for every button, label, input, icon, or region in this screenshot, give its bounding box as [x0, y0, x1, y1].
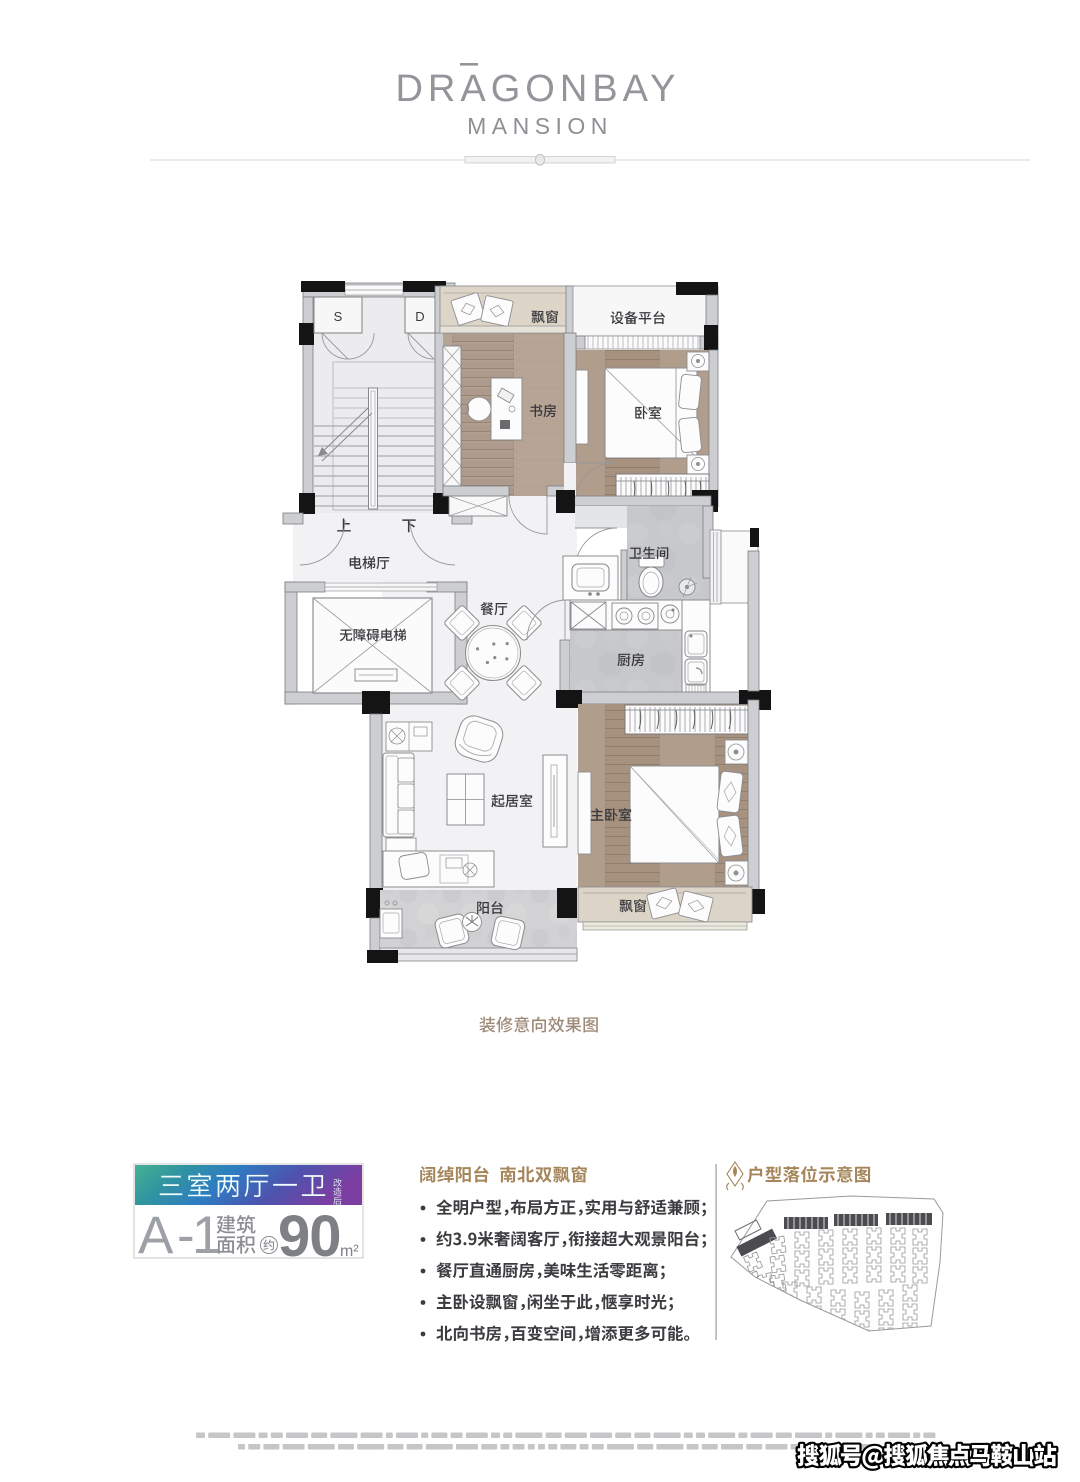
- svg-text:90: 90: [278, 1204, 341, 1269]
- svg-text:MANSION: MANSION: [467, 113, 613, 139]
- svg-text:m²: m²: [340, 1243, 359, 1260]
- svg-text:D: D: [415, 309, 424, 324]
- svg-text:S: S: [334, 309, 343, 324]
- svg-text:DRAGONBAY: DRAGONBAY: [395, 68, 680, 110]
- svg-text:A-1: A-1: [138, 1206, 221, 1265]
